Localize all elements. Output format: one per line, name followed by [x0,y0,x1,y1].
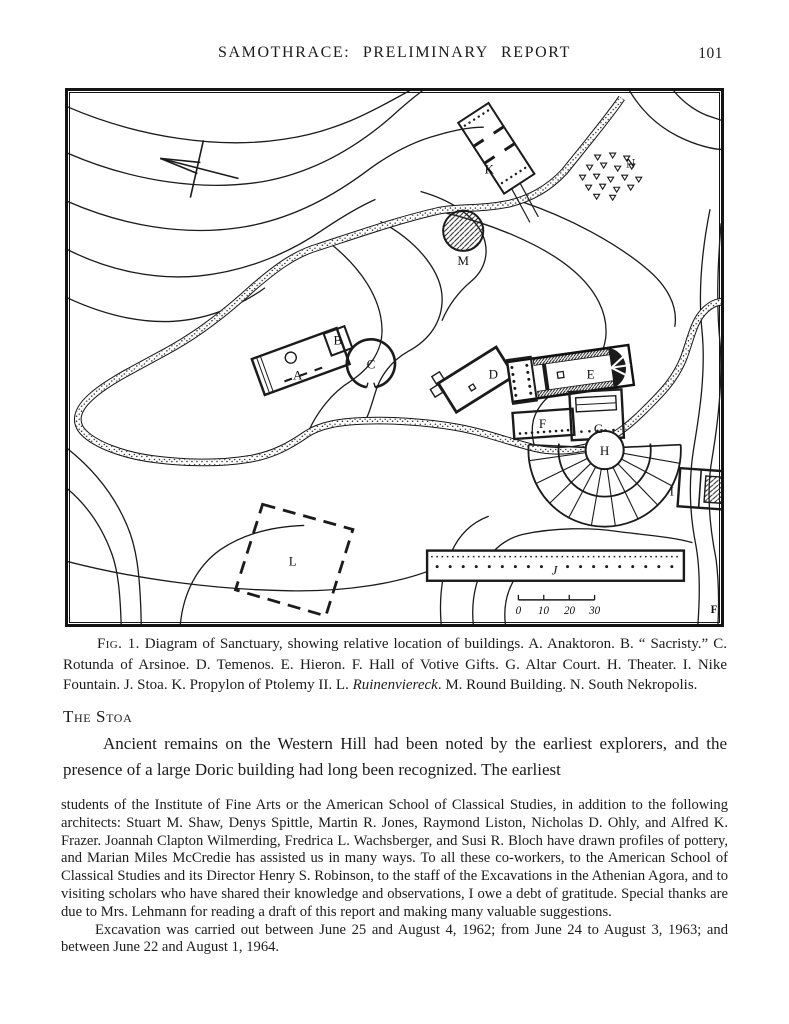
label-h: H [600,443,610,458]
building-m-round [443,211,483,251]
map-building-labels: A B C D E F G H I J K L M N F [289,155,718,616]
running-head-title: SAMOTHRACE: PRELIMINARY REPORT [0,44,789,62]
map-scale-bar: 0 10 20 30 [516,595,601,617]
label-a: A [293,368,303,383]
label-k: K [485,161,495,176]
footnote-paragraph-2: Excavation was carried out between June … [61,922,728,958]
scale-tick-10: 10 [538,605,550,617]
building-d-temenos [425,339,514,417]
label-l: L [289,554,297,569]
label-c: C [367,357,376,372]
label-g: G [594,421,604,436]
figure-caption-label: Fig. 1. [97,636,140,652]
label-d: D [489,367,498,382]
footnote-paragraph-1: students of the Institute of Fine Arts o… [61,797,728,922]
river-torrent [78,98,721,462]
page-number: 101 [698,45,723,63]
running-head: SAMOTHRACE: PRELIMINARY REPORT 101 [0,44,789,66]
scale-tick-0: 0 [516,605,522,617]
label-b: B [333,332,342,347]
sanctuary-map-svg: 0 10 20 30 A B C D E F G H I J K L M N [68,91,721,624]
scanned-paper-page: SAMOTHRACE: PRELIMINARY REPORT 101 [0,0,789,1024]
scale-tick-30: 30 [588,605,600,617]
figure-1-sanctuary-map: 0 10 20 30 A B C D E F G H I J K L M N [65,88,724,627]
footnote-block: students of the Institute of Fine Arts o… [61,797,728,957]
label-m: M [457,253,469,268]
north-arrow-icon [160,140,238,197]
label-e: E [587,367,595,382]
label-f: F [539,416,546,431]
body-paragraph: Ancient remains on the Western Hill had … [63,731,727,783]
label-i: I [670,483,674,498]
figure-caption: Fig. 1.Diagram of Sanctuary, showing rel… [63,634,727,696]
building-i-nike-fountain [678,468,721,510]
figure-caption-text-after: . M. Round Building. N. South Nekropolis… [438,677,698,693]
draftsman-initial: F [711,604,718,616]
scale-tick-20: 20 [564,605,576,617]
label-n: N [626,155,636,170]
figure-caption-italic-term: Ruinenviereck [353,677,438,693]
section-heading-the-stoa: The Stoa [63,707,132,727]
